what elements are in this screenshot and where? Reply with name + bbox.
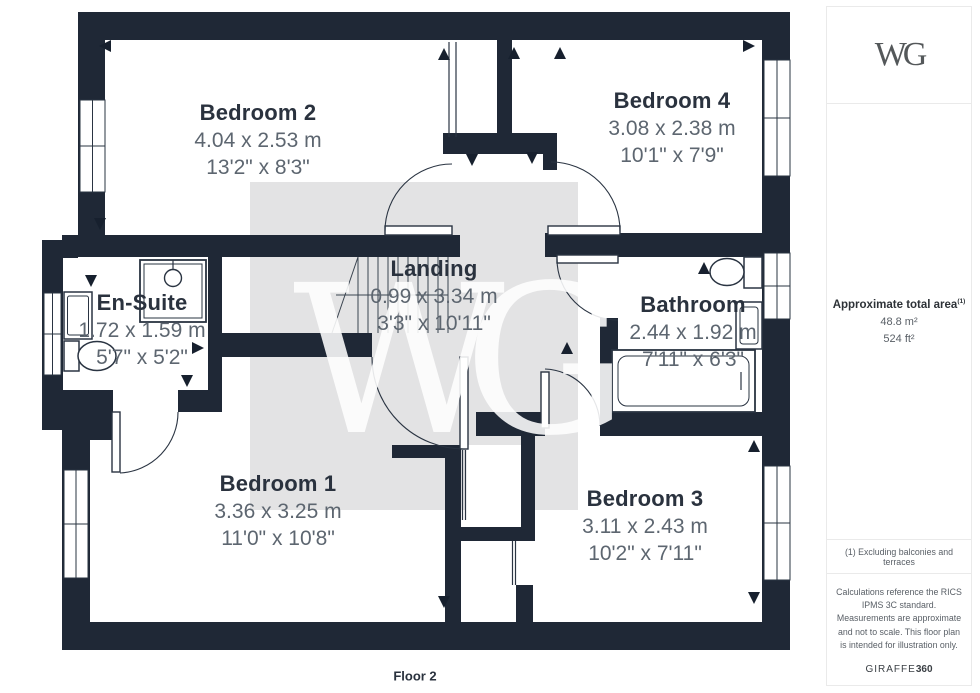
room-dimensions-metric: 1.72 x 1.59 m [78, 319, 205, 343]
room-name: Bathroom [629, 292, 756, 318]
window-bedroom4-right [764, 60, 790, 176]
bathroom-toilet [710, 257, 762, 288]
room-dimensions-metric: 3.11 x 2.43 m [582, 515, 708, 539]
door-ensuite [112, 412, 178, 473]
giraffe360-brand: GIRAFFE360 [836, 664, 962, 675]
disclaimer-text: Calculations reference the RICS IPMS 3C … [836, 586, 962, 652]
window-bathroom-right [764, 253, 790, 319]
room-label-bedroom-2: Bedroom 2 4.04 x 2.53 m 13'2" x 8'3" [194, 100, 321, 180]
room-dimensions-metric: 0.99 x 3.34 m [370, 285, 497, 309]
room-dimensions-metric: 3.08 x 2.38 m [608, 117, 735, 141]
floorplan-page: WG Bedroom 2 4.04 x 2.53 m 13'2" x 8'3" … [0, 0, 980, 693]
room-label-bedroom-1: Bedroom 1 3.36 x 3.25 m 11'0" x 10'8" [214, 471, 341, 551]
total-area-ft2: 524 ft² [883, 333, 914, 345]
room-name: Bedroom 2 [194, 100, 321, 126]
brand-logo: WG [827, 7, 971, 103]
window-bedroom1-left [64, 470, 88, 578]
room-label-bedroom-4: Bedroom 4 3.08 x 2.38 m 10'1" x 7'9" [608, 88, 735, 168]
room-name: Bedroom 4 [608, 88, 735, 114]
room-label-bedroom-3: Bedroom 3 3.11 x 2.43 m 10'2" x 7'11" [582, 486, 708, 566]
window-ensuite-bay [44, 293, 61, 375]
room-dimensions-imperial: 5'7" x 5'2" [78, 346, 205, 370]
room-dimensions-imperial: 10'1" x 7'9" [608, 144, 735, 168]
floor-number-label: Floor 2 [393, 669, 436, 684]
total-area-panel: Approximate total area(1) 48.8 m² 524 ft… [827, 103, 971, 539]
room-name: Bedroom 1 [214, 471, 341, 497]
room-dimensions-metric: 2.44 x 1.92 m [629, 321, 756, 345]
room-name: En-Suite [78, 290, 205, 316]
room-label-en-suite: En-Suite 1.72 x 1.59 m 5'7" x 5'2" [78, 290, 205, 370]
footnote-text: (1) Excluding balconies and terraces [827, 539, 971, 573]
room-name: Bedroom 3 [582, 486, 708, 512]
room-dimensions-imperial: 13'2" x 8'3" [194, 156, 321, 180]
total-area-title: Approximate total area(1) [833, 298, 966, 311]
room-dimensions-metric: 4.04 x 2.53 m [194, 129, 321, 153]
brand-name: GIRAFFE [865, 664, 915, 675]
window-bedroom2-left [80, 100, 105, 192]
room-dimensions-imperial: 10'2" x 7'11" [582, 542, 708, 566]
footnote-reference: (1) [957, 298, 965, 305]
room-dimensions-imperial: 7'11" x 6'3" [629, 348, 756, 372]
room-name: Landing [370, 256, 497, 282]
room-dimensions-imperial: 11'0" x 10'8" [214, 527, 341, 551]
total-area-title-text: Approximate total area [833, 299, 958, 311]
brand-suffix: 360 [916, 664, 933, 675]
room-dimensions-imperial: 3'3" x 10'11" [370, 312, 497, 336]
disclaimer-panel: Calculations reference the RICS IPMS 3C … [827, 573, 971, 685]
window-bedroom3-right [764, 466, 790, 580]
room-label-bathroom: Bathroom 2.44 x 1.92 m 7'11" x 6'3" [629, 292, 756, 372]
total-area-m2: 48.8 m² [880, 316, 917, 328]
room-label-landing: Landing 0.99 x 3.34 m 3'3" x 10'11" [370, 256, 497, 336]
info-sidebar: WG Approximate total area(1) 48.8 m² 524… [826, 6, 972, 686]
room-dimensions-metric: 3.36 x 3.25 m [214, 500, 341, 524]
